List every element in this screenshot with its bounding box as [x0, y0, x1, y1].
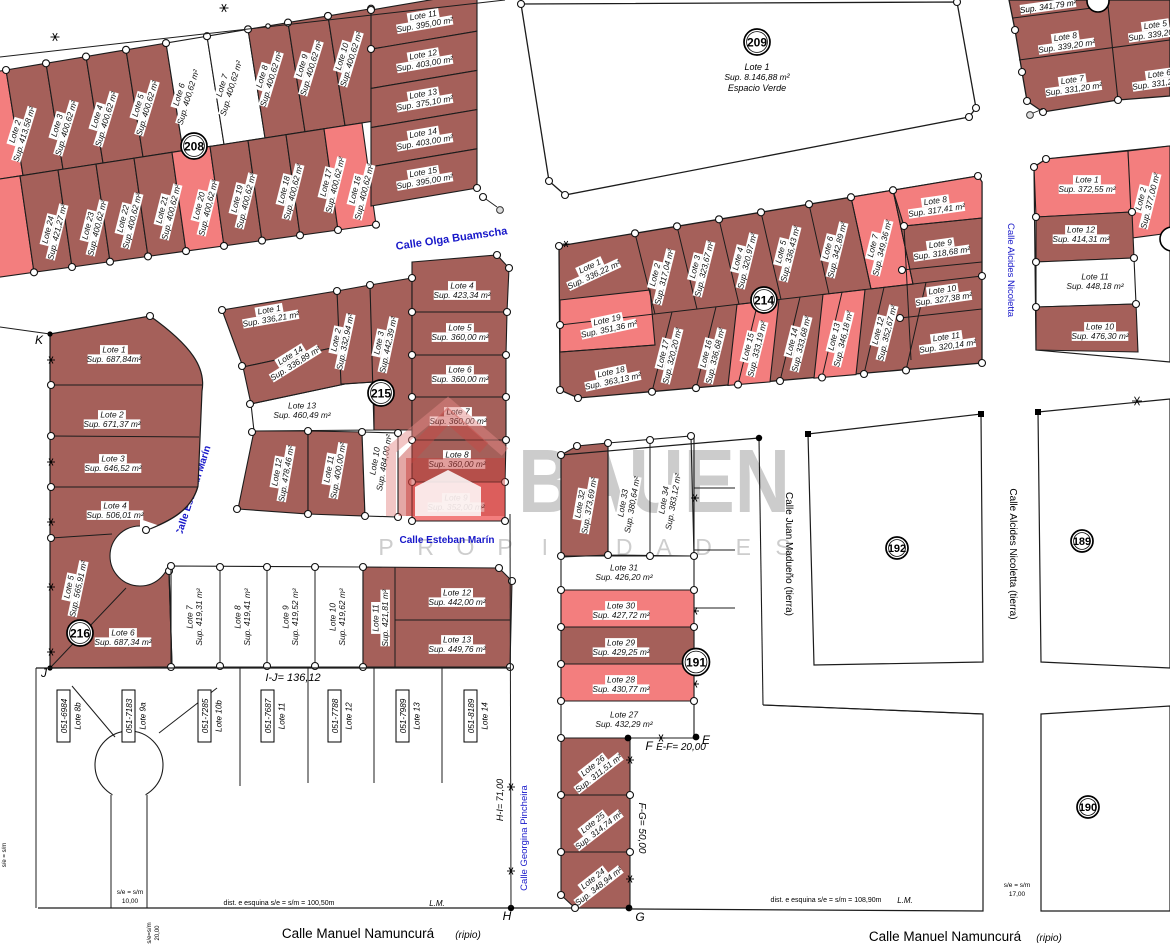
svg-text:Sup. 430,77 m²: Sup. 430,77 m² — [592, 684, 650, 694]
svg-text:Sup. 646,52 m²: Sup. 646,52 m² — [84, 463, 142, 473]
svg-text:Lote 1: Lote 1 — [1075, 175, 1098, 185]
svg-text:Lote 13: Lote 13 — [288, 401, 316, 411]
svg-text:s/e=s/m: s/e=s/m — [147, 922, 153, 943]
svg-text:208: 208 — [184, 139, 204, 153]
svg-text:s/e = s/m: s/e = s/m — [2, 843, 8, 868]
svg-text:189: 189 — [1073, 536, 1091, 548]
svg-text:051-7183: 051-7183 — [125, 698, 134, 733]
svg-text:H-I= 71,00: H-I= 71,00 — [495, 779, 505, 821]
svg-text:051-7687: 051-7687 — [264, 698, 273, 733]
svg-text:Lote 4: Lote 4 — [103, 501, 127, 511]
svg-text:Sup. 687,84m²: Sup. 687,84m² — [87, 354, 143, 364]
svg-text:Lote 8b: Lote 8b — [74, 702, 83, 730]
svg-text:Lote 29: Lote 29 — [607, 638, 635, 648]
svg-text:Sup. 419,41 m²: Sup. 419,41 m² — [242, 587, 252, 645]
svg-text:Lote 13: Lote 13 — [413, 702, 422, 730]
svg-text:E: E — [736, 534, 751, 560]
svg-text:L.M.: L.M. — [429, 899, 445, 908]
svg-text:Sup. 432,29 m²: Sup. 432,29 m² — [595, 719, 653, 729]
svg-text:Calle Manuel Namuncurá: Calle Manuel Namuncurá — [869, 929, 1022, 944]
svg-text:Calle Manuel Namuncurá: Calle Manuel Namuncurá — [282, 926, 435, 941]
svg-text:E-F= 20,00: E-F= 20,00 — [656, 742, 706, 753]
svg-text:Lote 30: Lote 30 — [607, 601, 635, 611]
svg-text:Espacio Verde: Espacio Verde — [728, 83, 786, 93]
svg-text:Lote 3: Lote 3 — [101, 454, 125, 464]
svg-text:Sup. 427,72 m²: Sup. 427,72 m² — [592, 610, 650, 620]
svg-text:Sup. 414,31 m²: Sup. 414,31 m² — [1052, 234, 1110, 244]
svg-text:Sup. 448,18 m²: Sup. 448,18 m² — [1066, 281, 1124, 291]
svg-text:216: 216 — [70, 626, 90, 640]
svg-text:191: 191 — [686, 655, 706, 669]
svg-text:L.M.: L.M. — [897, 896, 913, 905]
svg-text:Lote 5: Lote 5 — [448, 323, 472, 333]
svg-text:Sup. 419,62 m²: Sup. 419,62 m² — [337, 587, 347, 645]
svg-text:Lote 12: Lote 12 — [443, 588, 471, 598]
svg-text:Calle Esteban Marín: Calle Esteban Marín — [399, 535, 494, 546]
svg-text:Lote 27: Lote 27 — [610, 710, 638, 720]
svg-text:Lote 2: Lote 2 — [100, 410, 124, 420]
svg-text:Lote 10b: Lote 10b — [215, 700, 224, 732]
svg-text:Lote 9a: Lote 9a — [139, 702, 148, 730]
svg-text:051-8189: 051-8189 — [467, 698, 476, 733]
svg-text:215: 215 — [371, 386, 391, 400]
svg-text:s/e = s/m: s/e = s/m — [1004, 882, 1031, 889]
svg-text:Lote 12: Lote 12 — [345, 702, 354, 730]
svg-text:Sup. 671,37 m²: Sup. 671,37 m² — [83, 419, 141, 429]
svg-text:10,00: 10,00 — [122, 898, 139, 905]
svg-text:Lote 11: Lote 11 — [371, 604, 381, 631]
svg-text:(ripio): (ripio) — [455, 930, 481, 941]
svg-text:Lote 8: Lote 8 — [233, 605, 243, 629]
svg-text:17,00: 17,00 — [1009, 891, 1026, 898]
svg-text:Lote 13: Lote 13 — [443, 635, 471, 645]
svg-text:F-G= 50,00: F-G= 50,00 — [636, 803, 647, 854]
svg-text:I: I — [542, 534, 548, 560]
svg-text:Sup. 442,00 m²: Sup. 442,00 m² — [428, 597, 486, 607]
svg-text:Sup. 449,76 m²: Sup. 449,76 m² — [428, 644, 486, 654]
svg-text:Sup. 8.146,88 m²: Sup. 8.146,88 m² — [724, 72, 790, 82]
svg-text:dist. e esquina s/e = s/m = 10: dist. e esquina s/e = s/m = 100,50m — [224, 900, 335, 907]
svg-text:Sup. 460,49 m²: Sup. 460,49 m² — [273, 410, 331, 420]
svg-text:Sup. 423,34 m²: Sup. 423,34 m² — [433, 290, 491, 300]
svg-text:Lote 11: Lote 11 — [278, 703, 287, 730]
svg-text:051-7285: 051-7285 — [201, 698, 210, 733]
svg-text:F: F — [645, 739, 653, 753]
svg-text:dist. e esquina s/e = s/m = 10: dist. e esquina s/e = s/m = 108,90m — [771, 897, 882, 904]
svg-text:214: 214 — [754, 293, 774, 307]
svg-text:Sup. 360,00 m²: Sup. 360,00 m² — [431, 332, 489, 342]
svg-text:E: E — [702, 733, 711, 747]
svg-text:Lote 1: Lote 1 — [744, 62, 769, 72]
svg-text:Calle Juan Madueño (tierra): Calle Juan Madueño (tierra) — [783, 492, 794, 616]
svg-text:Sup. 506,01 m²: Sup. 506,01 m² — [86, 510, 144, 520]
svg-text:190: 190 — [1079, 802, 1097, 814]
svg-text:I-J= 136,12: I-J= 136,12 — [265, 672, 320, 684]
svg-text:192: 192 — [888, 543, 906, 555]
svg-text:209: 209 — [747, 35, 767, 49]
svg-text:20,00: 20,00 — [155, 925, 161, 941]
svg-text:Lote 7: Lote 7 — [185, 605, 195, 629]
svg-text:Sup. 421,81 m²: Sup. 421,81 m² — [380, 588, 390, 646]
svg-text:K: K — [35, 333, 44, 347]
svg-text:Lote 9: Lote 9 — [281, 605, 291, 629]
svg-text:051-6984: 051-6984 — [60, 698, 69, 733]
svg-text:(ripio): (ripio) — [1036, 933, 1062, 944]
svg-text:Lote 6: Lote 6 — [111, 628, 135, 638]
svg-text:Calle Alcides Nicoletta (tierr: Calle Alcides Nicoletta (tierra) — [1007, 488, 1018, 619]
svg-text:Calle Alcides Nicoletta: Calle Alcides Nicoletta — [1005, 223, 1016, 318]
svg-text:Calle Georgina Pincheira: Calle Georgina Pincheira — [519, 784, 530, 890]
svg-text:G: G — [635, 910, 644, 924]
svg-text:s/e = s/m: s/e = s/m — [117, 889, 144, 896]
svg-text:051-7788: 051-7788 — [331, 698, 340, 733]
svg-text:P: P — [378, 534, 393, 560]
svg-text:Sup. 429,25 m²: Sup. 429,25 m² — [592, 647, 650, 657]
svg-text:Lote 10: Lote 10 — [1086, 322, 1114, 332]
svg-text:Lote 31: Lote 31 — [610, 563, 638, 573]
svg-text:Sup. 419,52 m²: Sup. 419,52 m² — [290, 587, 300, 645]
svg-text:Lote 14: Lote 14 — [481, 702, 490, 730]
svg-text:Sup. 476,30 m²: Sup. 476,30 m² — [1071, 331, 1129, 341]
svg-text:Sup. 687,34 m²: Sup. 687,34 m² — [94, 637, 152, 647]
svg-text:Lote 10: Lote 10 — [328, 603, 338, 631]
svg-text:Lote 4: Lote 4 — [450, 281, 474, 291]
svg-text:Sup. 360,00 m²: Sup. 360,00 m² — [431, 374, 489, 384]
svg-text:Lote 1: Lote 1 — [102, 345, 125, 355]
svg-text:Lote 11: Lote 11 — [1081, 272, 1108, 282]
svg-text:051-7989: 051-7989 — [399, 698, 408, 733]
svg-text:Lote 12: Lote 12 — [1067, 225, 1095, 235]
svg-text:Lote 28: Lote 28 — [607, 675, 635, 685]
svg-text:Sup. 372,55 m²: Sup. 372,55 m² — [1058, 184, 1116, 194]
svg-text:Lote 6: Lote 6 — [448, 365, 472, 375]
svg-text:Sup. 419,31 m²: Sup. 419,31 m² — [194, 587, 204, 645]
svg-text:Sup. 426,20 m²: Sup. 426,20 m² — [595, 572, 653, 582]
